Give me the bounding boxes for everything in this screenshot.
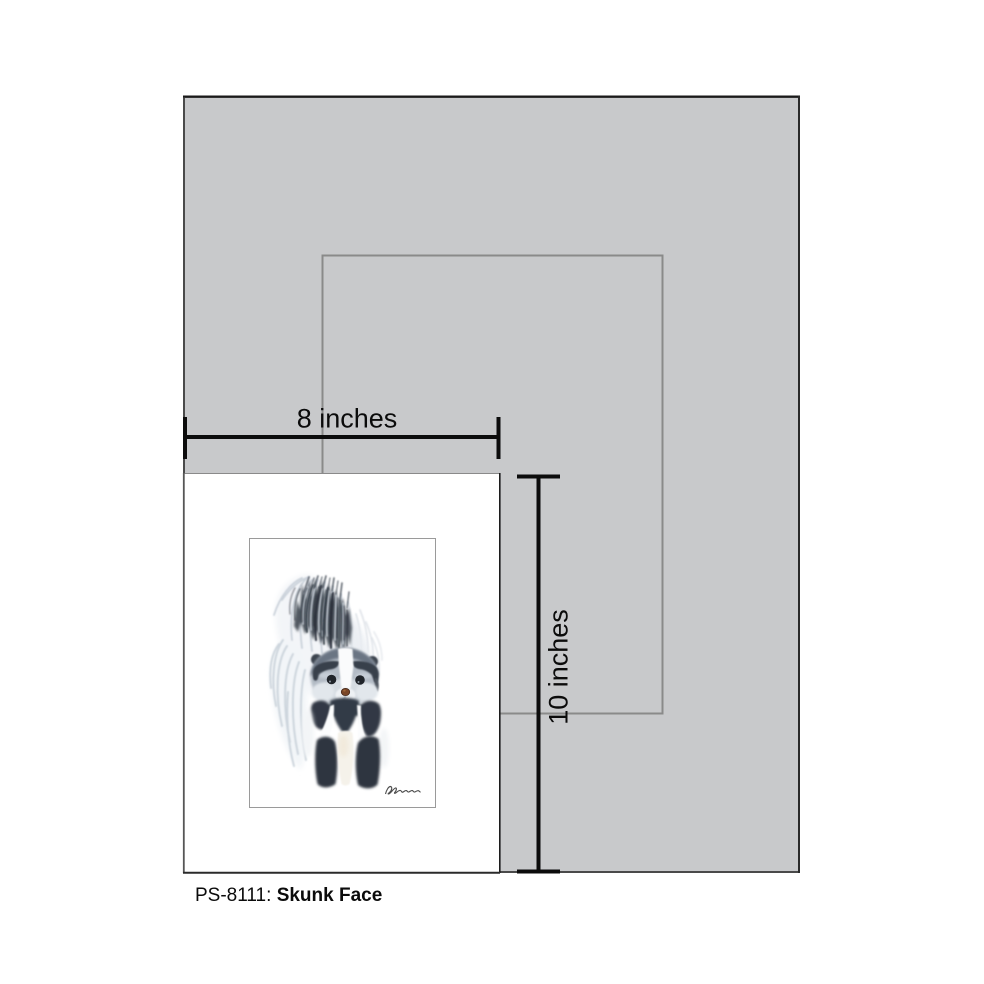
svg-text:8 inches: 8 inches (297, 404, 398, 434)
svg-text:10 inches: 10 inches (544, 609, 574, 725)
svg-text:PS-8111: Skunk Face: PS-8111: Skunk Face (195, 885, 382, 906)
